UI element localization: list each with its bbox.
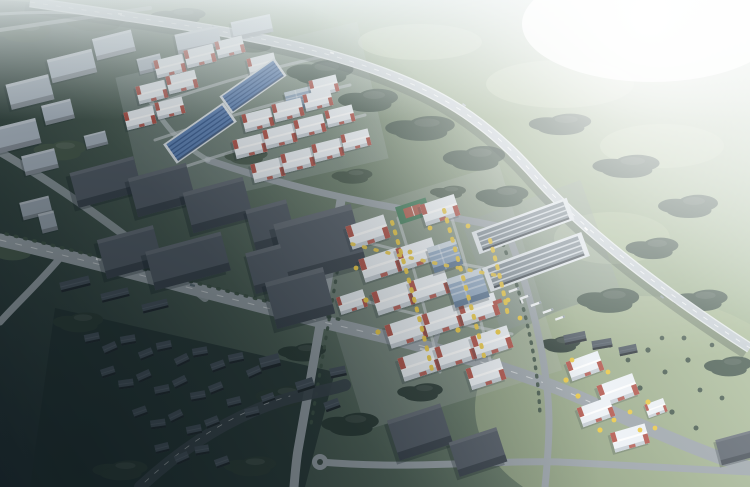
atmosphere-overlay — [0, 0, 750, 487]
aerial-rendering — [0, 0, 750, 487]
rendering-canvas — [0, 0, 750, 487]
southwest-vignette — [0, 0, 750, 487]
